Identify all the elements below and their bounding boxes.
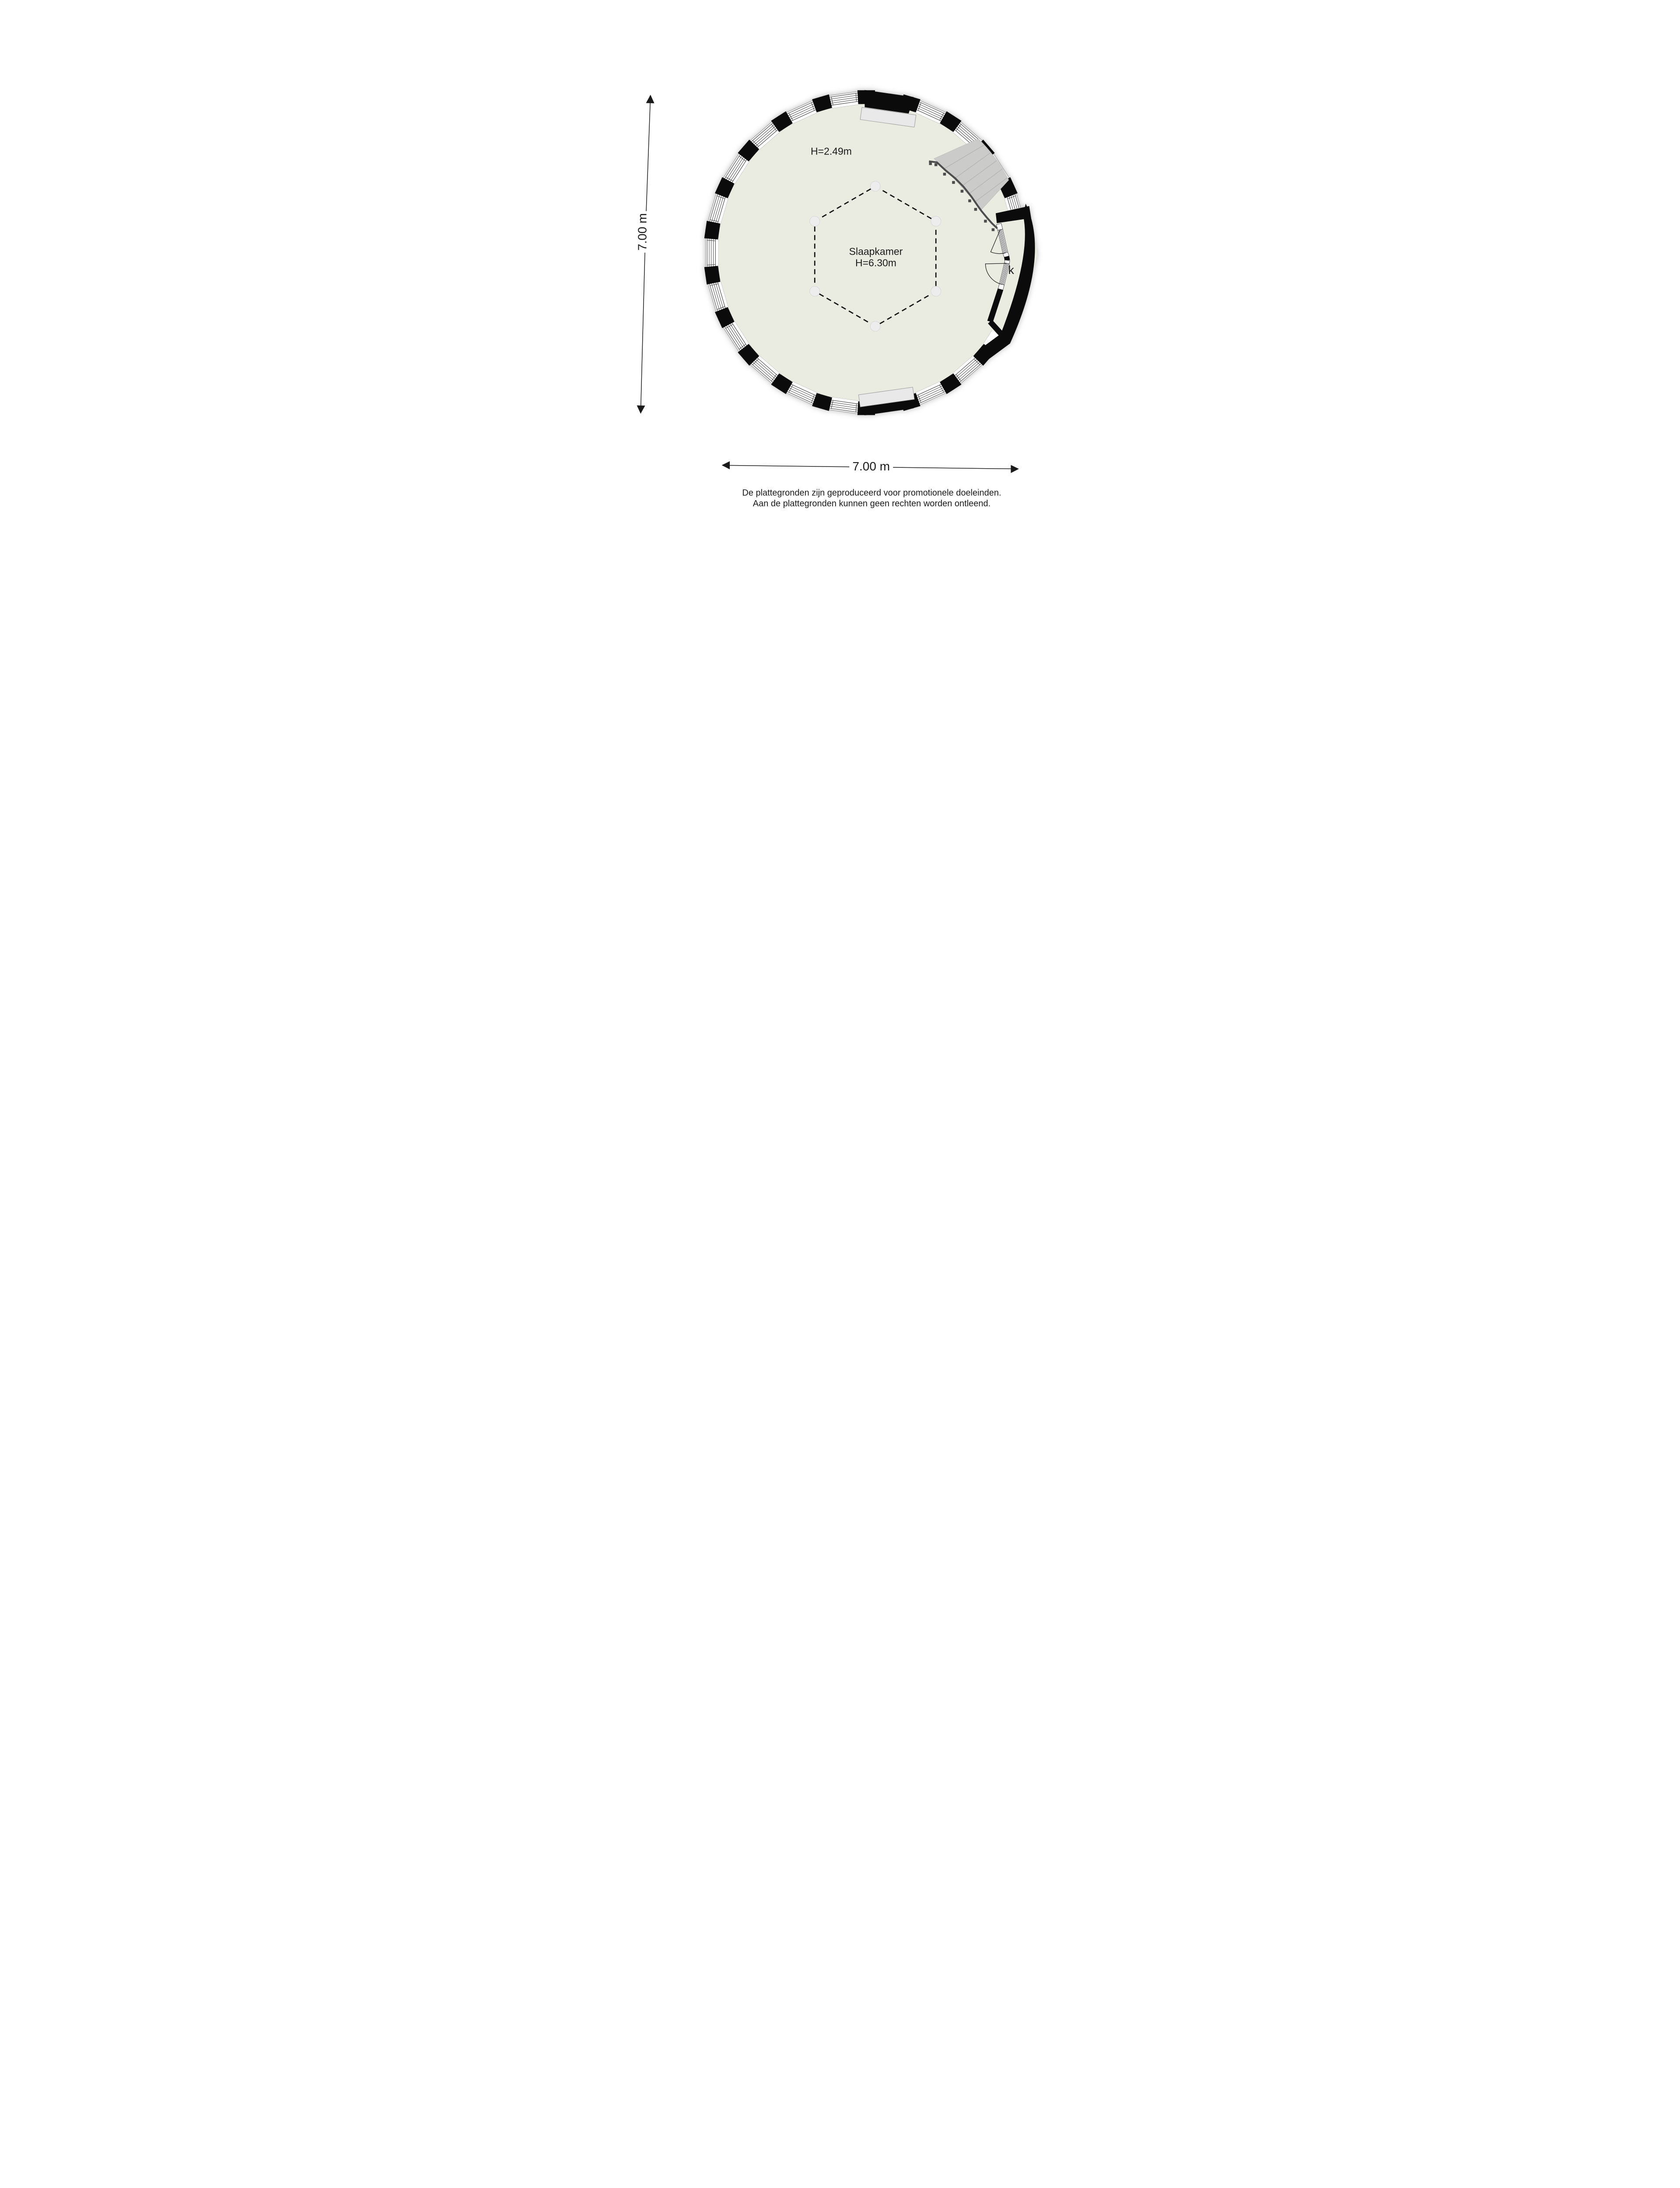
room-name-label: Slaapkamer [849, 245, 903, 257]
disclaimer-line-1: De plattegronden zijn geproduceerd voor … [742, 488, 1001, 498]
dimension-line [640, 252, 645, 413]
room-height-label: H=6.30m [855, 257, 896, 269]
ceiling-height-label: H=2.49m [811, 146, 852, 157]
horizontal-dimension: 7.00 m [722, 459, 1019, 473]
vertical-dimension: 7.00 m [636, 95, 654, 414]
dimension-line [646, 95, 651, 211]
arrowhead-down-icon [637, 405, 645, 414]
floorplan: H=2.49m Slaapkamer H=6.30m k [704, 90, 1037, 415]
arrowhead-left-icon [722, 461, 730, 469]
floorplan-canvas: H=2.49m Slaapkamer H=6.30m k 7.00 m 7.00… [630, 0, 1050, 594]
closet-label: k [1008, 263, 1014, 277]
disclaimer-line-2: Aan de plattegronden kunnen geen rechten… [753, 499, 990, 508]
horizontal-dimension-label: 7.00 m [852, 459, 890, 473]
dimension-line [893, 467, 1018, 469]
floorplan-page: H=2.49m Slaapkamer H=6.30m k 7.00 m 7.00… [630, 0, 1050, 594]
arrowhead-up-icon [646, 95, 654, 103]
dimension-line [722, 465, 849, 466]
vertical-dimension-label: 7.00 m [636, 213, 649, 251]
arrowhead-right-icon [1011, 465, 1018, 473]
